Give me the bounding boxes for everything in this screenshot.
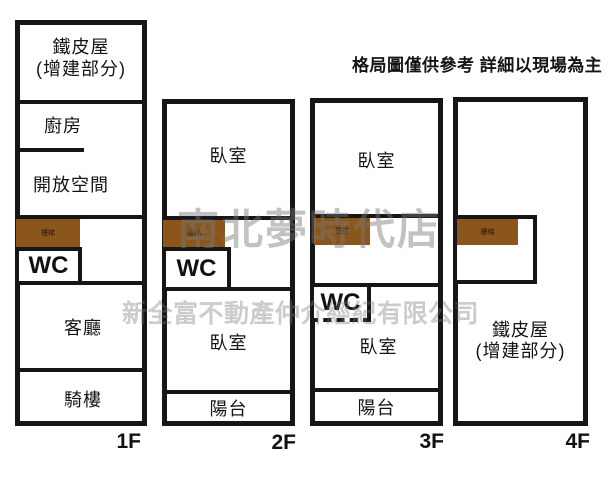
wall-2f-balcony-top xyxy=(162,390,295,394)
stairs-label: 樓梯 xyxy=(187,230,201,237)
stairs-box-4f: 樓梯 xyxy=(457,219,518,245)
wc-room-1f: WC xyxy=(15,247,82,285)
stairs-label: 樓梯 xyxy=(335,228,349,235)
floor-label-4f: 4F xyxy=(453,430,590,454)
room-label-bedroom-lower-3f: 臥室 xyxy=(312,337,445,358)
room-label-open-space: 開放空間 xyxy=(15,175,127,196)
room-label-tin-house-1f-line1: 鐵皮屋 xyxy=(15,37,147,58)
stairs-label: 樓梯 xyxy=(41,230,55,237)
room-label-kitchen: 廚房 xyxy=(15,116,111,137)
disclaimer-text: 格局圖僅供參考 詳細以現場為主 xyxy=(352,51,602,76)
floor-plan-canvas: 格局圖僅供參考 詳細以現場為主 樓梯 WC 鐵皮屋 (增建部分) 廚房 開放空間… xyxy=(0,0,608,480)
stairs-box-1f: 樓梯 xyxy=(16,219,80,247)
floor-label-1f: 1F xyxy=(15,430,141,454)
stairs-label: 樓梯 xyxy=(481,229,495,236)
room-label-tin-house-1f-line2: (增建部分) xyxy=(15,59,147,80)
floor-label-2f: 2F xyxy=(162,431,296,455)
stairs-box-2f: 樓梯 xyxy=(163,220,225,247)
room-label-living-room: 客廳 xyxy=(17,318,149,339)
room-label-tin-house-4f-line1: 鐵皮屋 xyxy=(453,320,588,341)
wc-label: WC xyxy=(177,255,217,283)
wc-room-2f: WC xyxy=(162,247,231,291)
room-label-arcade: 騎樓 xyxy=(17,390,149,411)
wall-1f-arcade-top xyxy=(15,368,147,372)
wall-1f-tinhouse-bottom xyxy=(15,100,147,104)
floorplan-3f xyxy=(310,98,443,426)
room-label-tin-house-4f-line2: (增建部分) xyxy=(453,341,588,362)
floor-label-3f: 3F xyxy=(310,430,444,454)
stairs-box-3f: 樓梯 xyxy=(314,218,370,245)
room-label-balcony-2f: 陽台 xyxy=(162,399,295,420)
wall-1f-kitchen-partial xyxy=(15,148,84,152)
room-label-balcony-3f: 陽台 xyxy=(310,398,443,419)
room-label-bedroom-upper-3f: 臥室 xyxy=(310,151,443,172)
room-label-bedroom-lower-2f: 臥室 xyxy=(162,333,295,354)
wc-room-3f: WC xyxy=(310,283,371,322)
wc-label: WC xyxy=(29,252,69,280)
room-label-bedroom-upper-2f: 臥室 xyxy=(162,146,295,167)
wall-3f-balcony-top xyxy=(310,388,443,392)
wc-label: WC xyxy=(321,289,361,317)
